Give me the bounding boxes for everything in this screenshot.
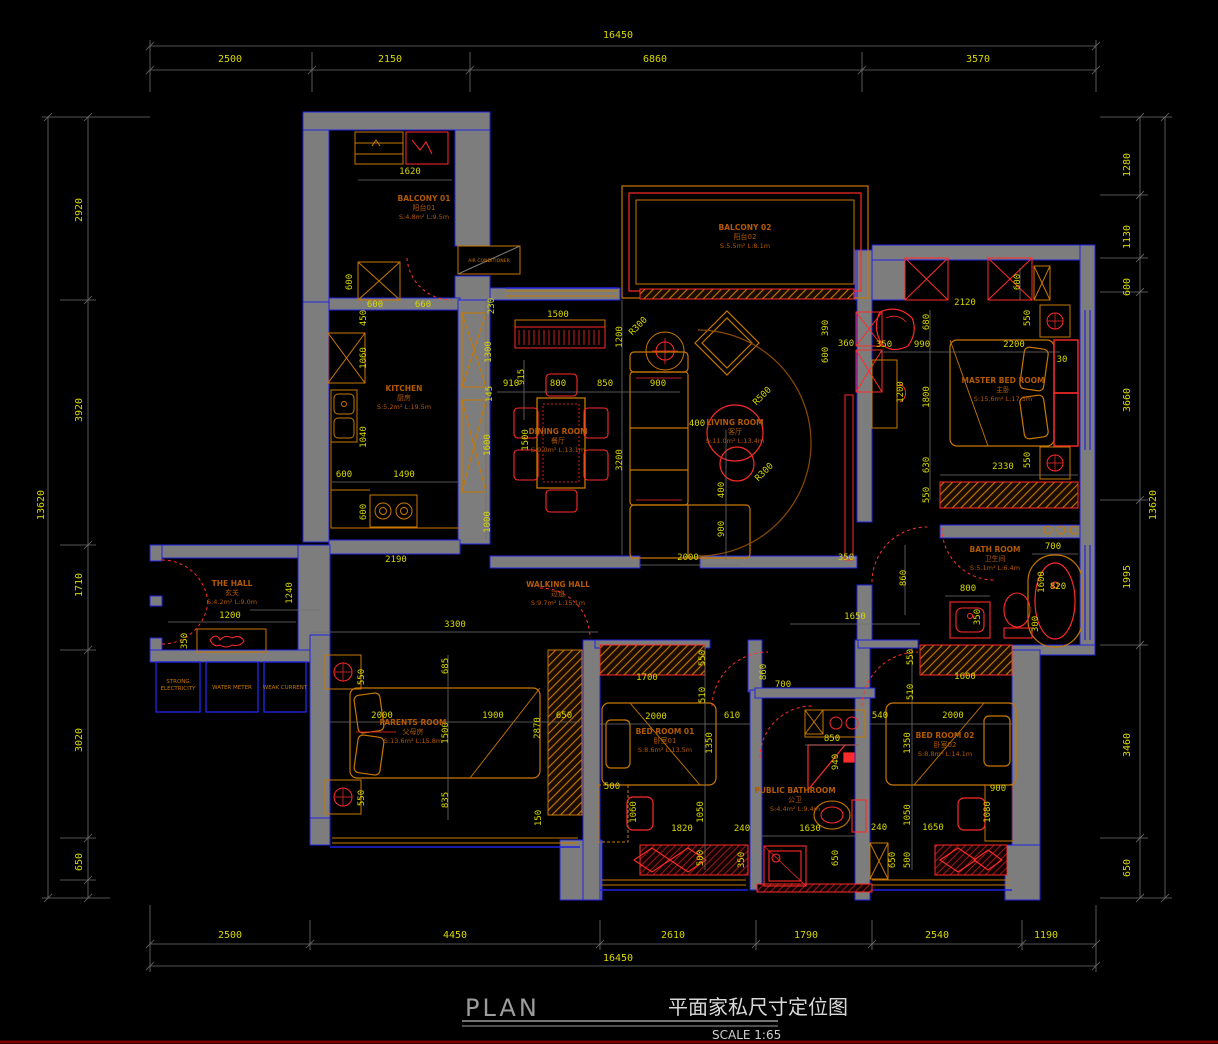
- dim-label-bed02: 500: [903, 852, 913, 868]
- room-label-bed-room-02: BED ROOM 02: [916, 731, 975, 740]
- closet-xbox: [358, 262, 400, 300]
- room-label-cn-dining-room: 餐厅: [551, 436, 565, 445]
- dim-label-left: 650: [74, 853, 85, 871]
- dim-label-left: 3020: [74, 728, 85, 752]
- dim-label-parents: 2870: [533, 717, 543, 739]
- bed02-wardrobe: [920, 645, 1012, 675]
- dim-label-dining: 900: [650, 379, 666, 389]
- dim-label-master: 550: [1023, 310, 1033, 326]
- dim-label-parents: 835: [441, 792, 451, 808]
- dim-label-bed01: 510: [698, 687, 708, 703]
- dim-label-dining: 1200: [615, 326, 625, 348]
- room-label-the-hall: THE HALL: [212, 579, 253, 588]
- dim-label-kitchen: 1300: [484, 341, 494, 363]
- dim-label-bath: 350: [973, 609, 983, 625]
- plan-title: PLAN: [465, 994, 540, 1022]
- room-label-info-bath-room: S:5.1m² L:6.4m: [970, 564, 1020, 572]
- room-label-bath-room: BATH ROOM: [970, 545, 1021, 554]
- room-label-info-public-bathroom: S:4.4m² L:9.4m: [770, 805, 820, 813]
- dim-label-right: 600: [1122, 278, 1133, 296]
- room-label-info-bed-room-02: S:8.8m² L:14.1m: [918, 750, 972, 758]
- dim-label-bed01: 1700: [636, 673, 658, 683]
- dim-label-master: 550: [922, 487, 932, 503]
- room-label-cn-bed-room-02: 卧室02: [934, 740, 957, 749]
- kitchen-counter: [331, 442, 460, 528]
- room-label-info-balcony-02: S:5.5m² L:8.1m: [720, 242, 770, 250]
- dim-label-kitchen: 1060: [359, 347, 369, 369]
- dim-label-bed01: 350: [737, 852, 747, 868]
- dim-label-top: 3570: [966, 54, 990, 65]
- dim-label-bottom: 16450: [603, 953, 633, 964]
- dim-label-bed02: 240: [871, 823, 887, 833]
- dim-label-right: 3460: [1122, 733, 1133, 757]
- dim-label-master: 550: [1023, 452, 1033, 468]
- dim-label-right: 1130: [1122, 225, 1133, 249]
- dim-label-balcony01: 450: [359, 310, 369, 326]
- dim-label-bed02: 1050: [903, 804, 913, 826]
- dim-label-pubbath: 940: [831, 754, 841, 770]
- title-block: PLAN 平面家私尺寸定位图 SCALE 1:65: [0, 994, 1218, 1042]
- dim-label-dining: R300: [627, 315, 649, 337]
- dim-label-pubbath: 1630: [799, 824, 821, 834]
- room-label-master-bed-room: MASTER BED ROOM: [962, 376, 1045, 385]
- room-label-info-master-bed-room: S:15.6m² L:17.3m: [974, 395, 1032, 403]
- dim-label-bed01: 550: [698, 650, 708, 666]
- dim-label-left: 13620: [36, 490, 47, 520]
- dim-label-balcony01: 600: [345, 274, 355, 290]
- sofa: [630, 352, 750, 558]
- washing-machine-balcony: [406, 132, 448, 164]
- dim-label-master: 2330: [992, 462, 1014, 472]
- dim-label-parents: 685: [441, 658, 451, 674]
- dim-label-right: 1995: [1122, 565, 1133, 589]
- dim-label-master: 350: [876, 340, 892, 350]
- room-label-cn-master-bed-room: 主卧: [996, 385, 1010, 394]
- room-label-cn-the-hall: 玄关: [225, 588, 239, 597]
- dim-label-bed02: 2000: [942, 711, 964, 721]
- entry-door-arc: [162, 560, 208, 606]
- dim-label-dining: 1500: [547, 310, 569, 320]
- dim-label-bed01: 500: [604, 782, 620, 792]
- dim-label-right: 650: [1122, 859, 1133, 877]
- dim-label-right: 3660: [1122, 388, 1133, 412]
- room-label-info-bed-room-01: S:8.6m² L:13.5m: [638, 746, 692, 754]
- bed01-wardrobe: [600, 645, 705, 675]
- dim-label-living: 350: [838, 553, 854, 563]
- dim-label-master: 1200: [896, 381, 906, 403]
- dim-label-kitchen: 145: [485, 386, 495, 402]
- dim-label-living: R300: [753, 461, 775, 483]
- utility-label-1: WATER METER: [212, 685, 252, 691]
- room-label-bed-room-01: BED ROOM 01: [636, 727, 695, 736]
- dim-label-bottom: 2540: [925, 930, 949, 941]
- dim-label-bed02: 650: [888, 852, 898, 868]
- dim-label-top: 16450: [603, 30, 633, 41]
- dim-label-balcony01: 660: [415, 300, 431, 310]
- pubbath-door-arc: [760, 706, 812, 758]
- washing-machine: [764, 846, 806, 886]
- bathroom-sink: [950, 602, 990, 638]
- dim-label-bed02: 900: [990, 784, 1006, 794]
- balcony01-door-arc: [407, 258, 452, 300]
- dim-label-bath: 700: [1045, 542, 1061, 552]
- kitchen-stove: [370, 495, 417, 527]
- room-label-info-parents-room: S:13.6m² L:15.8m: [384, 737, 442, 745]
- dim-label-bed01: 240: [734, 824, 750, 834]
- closet-xbox: [1034, 266, 1050, 300]
- utility-label-2: WEAK CURRENT: [263, 685, 308, 691]
- dim-label-pubbath: 850: [824, 734, 840, 744]
- shelf-unit: [355, 132, 403, 164]
- utility-label-0: ELECTRICITY: [161, 686, 196, 692]
- scale-label: SCALE 1:65: [712, 1028, 781, 1042]
- dim-label-balcony01: 1620: [399, 167, 421, 177]
- dim-label-master: 680: [922, 314, 932, 330]
- bed02-chair: [958, 798, 985, 830]
- dim-label-corridor: 2190: [385, 555, 407, 565]
- room-label-info-balcony-01: S:4.8m² L:9.5m: [399, 213, 449, 221]
- dim-label-parents: 150: [534, 810, 544, 826]
- master-wardrobe: [940, 482, 1078, 508]
- dim-label-bed02: 1080: [983, 801, 993, 823]
- dim-label-master: 2120: [954, 298, 976, 308]
- dim-label-living: 360: [838, 339, 854, 349]
- room-label-kitchen: KITCHEN: [386, 384, 423, 393]
- room-label-cn-bath-room: 卫生间: [985, 554, 1006, 563]
- dim-label-corridor: 1650: [844, 612, 866, 622]
- cn-title: 平面家私尺寸定位图: [668, 995, 848, 1019]
- nightstand: [1040, 305, 1070, 337]
- dim-label-master: 630: [922, 457, 932, 473]
- cad-floor-plan-canvas[interactable]: 1645025002150686035702500445026101790254…: [0, 0, 1218, 1044]
- closet-xbox: [988, 258, 1032, 300]
- closet-xbox: [870, 843, 888, 879]
- dim-label-parents: 550: [357, 669, 367, 685]
- dim-label-bed01: 2000: [645, 712, 667, 722]
- room-label-cn-public-bathroom: 公卫: [788, 796, 802, 804]
- dim-label-bed01: 860: [759, 664, 769, 680]
- dim-label-bottom: 1190: [1034, 930, 1058, 941]
- dim-label-bed01: 1060: [629, 801, 639, 823]
- dim-label-living: R500: [751, 385, 773, 407]
- dim-label-living: 390: [821, 320, 831, 336]
- room-label-balcony-02: BALCONY 02: [719, 223, 772, 232]
- dim-label-bottom: 1790: [794, 930, 818, 941]
- dim-label-bed02: 1600: [954, 672, 976, 682]
- dim-label-bottom: 4450: [443, 930, 467, 941]
- dim-label-bath: 1600: [1037, 571, 1047, 593]
- dim-label-dining: 3200: [615, 449, 625, 471]
- dim-label-bed01: 1050: [696, 801, 706, 823]
- ceiling-fan: [646, 332, 684, 370]
- dim-label-master: 990: [914, 340, 930, 350]
- dim-label-bottom: 2500: [218, 930, 242, 941]
- dim-label-master: 30: [1057, 355, 1068, 365]
- closet-xbox: [905, 258, 948, 300]
- floor-plan-svg: 1645025002150686035702500445026101790254…: [0, 0, 1218, 1044]
- dim-label-kitchen: 1000: [483, 511, 493, 533]
- dim-label-left: 3920: [74, 398, 85, 422]
- dim-label-dining: 800: [550, 379, 566, 389]
- dim-label-bath: 800: [960, 584, 976, 594]
- room-label-info-dining-room: S:9.0m² L:13.1m: [531, 446, 585, 454]
- nightstand: [1040, 447, 1070, 479]
- room-label-walking-hall: WALKING HALL: [526, 580, 590, 589]
- closet-xbox: [805, 710, 823, 734]
- room-label-balcony-01: BALCONY 01: [398, 194, 451, 203]
- bed01-window-seat: [640, 845, 748, 875]
- dim-label-top: 2500: [218, 54, 242, 65]
- dim-label-living: 600: [821, 347, 831, 363]
- dim-label-hall: 350: [180, 633, 190, 649]
- dim-label-kitchen: 600: [359, 504, 369, 520]
- room-label-living-room: LIVING ROOM: [706, 418, 763, 427]
- dim-label-bed01: 1820: [671, 824, 693, 834]
- dim-label-pubbath: 650: [831, 850, 841, 866]
- dim-label-corridor: 700: [775, 680, 791, 690]
- dim-label-parents: 550: [357, 790, 367, 806]
- dim-label-living: 400: [717, 482, 727, 498]
- kitchen-sink: [331, 390, 357, 442]
- dim-label-hall: 1240: [285, 582, 295, 604]
- bathtub: [1028, 555, 1082, 647]
- room-label-parents-room: PARENTS ROOM: [380, 718, 447, 727]
- dim-label-kitchen: 230: [487, 298, 497, 314]
- room-label-public-bathroom: PUBLIC BATHROOM: [754, 786, 835, 795]
- dim-label-bed01: 1350: [705, 732, 715, 754]
- shoe-cabinet: [197, 629, 266, 652]
- room-label-info-living-room: S:11.0m² L:13.4m: [706, 437, 764, 445]
- dim-label-kitchen: 1600: [483, 434, 493, 456]
- dim-label-dining: 850: [597, 379, 613, 389]
- dim-label-living: 400: [689, 419, 705, 429]
- dim-label-bed02: 1350: [903, 732, 913, 754]
- dim-label-bed01: 500: [696, 850, 706, 866]
- dim-label-parents: 650: [556, 711, 572, 721]
- room-label-dining-room: DINING ROOM: [528, 427, 587, 436]
- room-label-cn-walking-hall: 过道: [551, 589, 565, 598]
- dim-label-right: 13620: [1148, 490, 1159, 520]
- parents-wardrobe: [548, 650, 582, 815]
- dim-label-bed02: 540: [872, 711, 888, 721]
- room-label-cn-balcony-01: 阳台01: [413, 203, 436, 212]
- dim-label-left: 1710: [74, 573, 85, 597]
- dim-label-living: 900: [717, 521, 727, 537]
- parents-door-arc: [540, 588, 590, 638]
- dim-label-living: 2000: [677, 553, 699, 563]
- dim-label-master: 600: [1013, 274, 1023, 290]
- dim-label-kitchen: 600: [336, 470, 352, 480]
- bed01-desk: [598, 785, 628, 842]
- room-label-cn-kitchen: 厨房: [397, 393, 411, 402]
- dim-label-top: 6860: [643, 54, 667, 65]
- room-label-cn-bed-room-01: 卧室01: [654, 736, 677, 745]
- dining-sideboard: [515, 320, 605, 348]
- room-label-cn-parents-room: 父母房: [403, 727, 424, 736]
- dim-label-corridor: 860: [899, 570, 909, 586]
- utility-labels: STRONGELECTRICITYWATER METERWEAK CURRENT: [161, 679, 308, 692]
- dim-label-dining: 910: [503, 379, 519, 389]
- dim-label-top: 2150: [378, 54, 402, 65]
- dim-label-kitchen: 1040: [359, 426, 369, 448]
- dim-label-bed02: 510: [906, 684, 916, 700]
- dim-label-master: 2200: [1003, 340, 1025, 350]
- dim-label-bed01: 610: [724, 711, 740, 721]
- dim-label-parents: 1900: [482, 711, 504, 721]
- dim-label-bottom: 2610: [661, 930, 685, 941]
- dim-label-balcony01: 600: [367, 300, 383, 310]
- closet-xbox-layer: [328, 258, 1050, 879]
- utility-label-0: STRONG: [166, 679, 189, 685]
- dim-label-bath: 820: [1050, 582, 1066, 592]
- dim-label-left: 2920: [74, 198, 85, 222]
- dim-label-kitchen: 1490: [393, 470, 415, 480]
- room-label-cn-living-room: 客厅: [728, 427, 742, 436]
- dim-label-master: 1800: [922, 386, 932, 408]
- room-label-info-the-hall: S:4.2m² L:9.0m: [207, 598, 257, 606]
- room-label-info-walking-hall: S:9.7m² L:15.1m: [531, 599, 585, 607]
- air-conditioner-label: AIR CONDITIONER: [468, 258, 510, 264]
- dim-label-right: 1280: [1122, 153, 1133, 177]
- room-label-cn-balcony-02: 阳台02: [734, 232, 757, 241]
- dim-label-bath: 300: [1031, 616, 1041, 632]
- dim-label-corridor: 3300: [444, 620, 466, 630]
- room-label-info-kitchen: S:5.2m² L:19.5m: [377, 403, 431, 411]
- tv-unit: [845, 395, 853, 560]
- dim-label-bed02: 1650: [922, 823, 944, 833]
- dim-label-bed02: 550: [906, 649, 916, 665]
- bed02-window-seat: [935, 845, 1007, 875]
- dim-label-hall: 1200: [219, 611, 241, 621]
